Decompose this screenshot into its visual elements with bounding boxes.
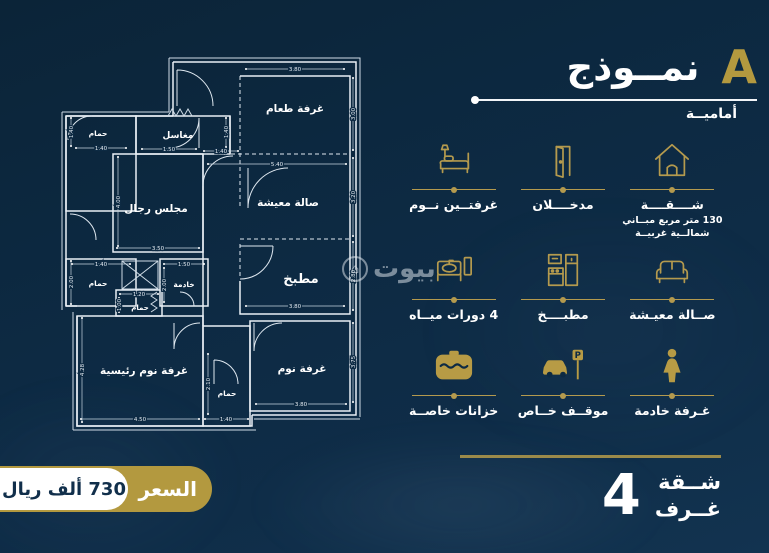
feature-divider (412, 299, 496, 300)
header-divider-line (475, 99, 757, 101)
feature-label: شــــقــــة (622, 197, 722, 214)
dim-sinks-width: 1.50 (163, 147, 176, 153)
feature-divider (412, 395, 496, 396)
dim-majlis-height: 4.00 (116, 195, 122, 208)
kitchen-icon (540, 248, 586, 290)
closet-zigzag-side (151, 292, 157, 312)
price-label: السعر (139, 466, 197, 512)
dim-bath-bottom-width: 1.40 (220, 417, 233, 423)
feature-label: شمالــية غربيــة (622, 227, 722, 240)
real-estate-flyer: 3.80 1.40 5.40 3.80 3.80 4.50 1.40 3.50 … (0, 0, 769, 553)
room-label-sinks: مغاسل (163, 131, 194, 141)
feature-label: صــالة معيـشة (629, 307, 715, 324)
summary-word-rooms: غــرف (655, 496, 721, 523)
summary-word-apartment: شــقة (655, 469, 721, 496)
room-label-kitchen: مطبخ (283, 272, 318, 287)
watermark-text: بيوت (373, 254, 436, 284)
apartment-summary: شــقة غــرف 4 (602, 468, 721, 524)
maid-icon (649, 344, 695, 386)
feature-label: مدخــــلان (532, 197, 593, 214)
feature-water-tanks: خزانات خاصــة (402, 344, 505, 420)
dim-master-width: 4.50 (134, 417, 147, 423)
room-label-master: غرفة نوم رئيسية (100, 365, 188, 377)
feature-entrances: مدخــــلان (511, 138, 614, 248)
feature-bedrooms: غرفتــين نــوم (402, 138, 505, 248)
dim-bath-mid-width: 1.40 (95, 262, 108, 268)
stairs (122, 261, 158, 289)
model-title: A نمــوذج (567, 40, 757, 94)
dim-dining-height: 3.00 (351, 107, 357, 120)
feature-label: خزانات خاصــة (409, 403, 498, 420)
dim-master-height: 4.28 (80, 363, 86, 376)
sofa-icon (649, 248, 695, 290)
feature-label: 130 متر مربع مبــاني (622, 214, 722, 227)
room-label-bath-bottom: حمام (218, 389, 237, 398)
features-grid: شــــقــــة 130 متر مربع مبــاني شمالــي… (402, 138, 724, 420)
feature-label: غـرفة خادمة (634, 403, 710, 420)
room-label-majlis: مجلس رجال (124, 203, 188, 215)
dim-bedroom-height: 3.75 (351, 355, 357, 368)
price-value: 730 ألف ريال (2, 479, 126, 500)
model-word: نمــوذج (567, 46, 700, 89)
feature-divider (521, 395, 605, 396)
dim-kitchen-width: 3.80 (289, 304, 302, 310)
feature-divider (630, 299, 714, 300)
feature-label: غرفتــين نــوم (409, 197, 498, 214)
dim-maid-height: 2.00 (162, 278, 168, 291)
dining-walls (240, 76, 350, 154)
dim-hall-gap: 1.40 (215, 149, 228, 155)
dim-majlis-width: 3.50 (152, 246, 165, 252)
feature-label: 4 دورات ميــاه (409, 307, 498, 324)
feature-label: مطبــــخ (537, 307, 588, 324)
dim-living-width: 5.40 (271, 162, 284, 168)
feature-label: موقــف خــاص (518, 403, 609, 420)
rooms-count: 4 (602, 468, 641, 524)
bath-bottom-walls (203, 326, 250, 426)
feature-divider (521, 189, 605, 190)
dim-maid-width: 1.50 (178, 262, 191, 268)
room-label-dining: غرفة طعام (266, 103, 324, 115)
feature-divider (630, 395, 714, 396)
parking-icon: P (540, 344, 586, 386)
model-subtitle: أماميــة (686, 106, 737, 122)
room-label-bath-mid: حمام (89, 279, 108, 288)
summary-divider-line (460, 455, 721, 458)
watermark-house-logo-icon: ⌂ (342, 256, 368, 282)
room-label-maid: خادمة (173, 280, 194, 289)
feature-living-room: صــالة معيـشة (621, 248, 724, 344)
price-banner: 730 ألف ريال السعر (0, 466, 212, 512)
feature-divider (521, 299, 605, 300)
dim-sinks-height: 1.40 (224, 125, 230, 138)
watermark: ⌂ بيوت (342, 254, 436, 284)
feature-divider (630, 189, 714, 190)
room-label-bedroom: غرفة نوم (278, 363, 327, 375)
tank-icon (431, 344, 477, 386)
svg-text:P: P (575, 351, 581, 361)
dim-bath-bottom-height: 2.10 (206, 377, 212, 390)
dim-bath-small-height: 1.00 (117, 298, 123, 311)
room-label-living: صالة معيشة (257, 197, 319, 209)
feature-maid-room: غـرفة خادمة (621, 344, 724, 420)
dim-bath-top-height: 1.40 (69, 125, 75, 138)
dim-bath-small-width: 1.20 (133, 292, 146, 298)
room-label-bath-top: حمام (89, 129, 108, 138)
floorplan-drawing: 3.80 1.40 5.40 3.80 3.80 4.50 1.40 3.50 … (56, 54, 370, 444)
feature-parking: P موقــف خــاص (511, 344, 614, 420)
dim-bath-top-width: 1.40 (95, 146, 108, 152)
closet-zigzag-top (168, 109, 192, 116)
bathroom-icon (431, 248, 477, 290)
door-icon (540, 138, 586, 180)
price-value-pill: 730 ألف ريال (0, 468, 128, 510)
feature-divider (412, 189, 496, 190)
dim-living-height: 3.20 (351, 190, 357, 203)
dim-bath-mid-height: 2.00 (69, 275, 75, 288)
feature-apartment: شــــقــــة 130 متر مربع مبــاني شمالــي… (621, 138, 724, 248)
door-arcs (68, 70, 288, 384)
dim-dining-width: 3.80 (289, 67, 302, 73)
dim-bedroom-width: 3.80 (295, 402, 308, 408)
bed-icon (431, 138, 477, 180)
model-letter: A (721, 40, 757, 94)
house-icon (649, 138, 695, 180)
room-label-bath-small: حمام (131, 304, 149, 312)
corridor-walls (203, 116, 230, 326)
feature-kitchen: مطبــــخ (511, 248, 614, 344)
